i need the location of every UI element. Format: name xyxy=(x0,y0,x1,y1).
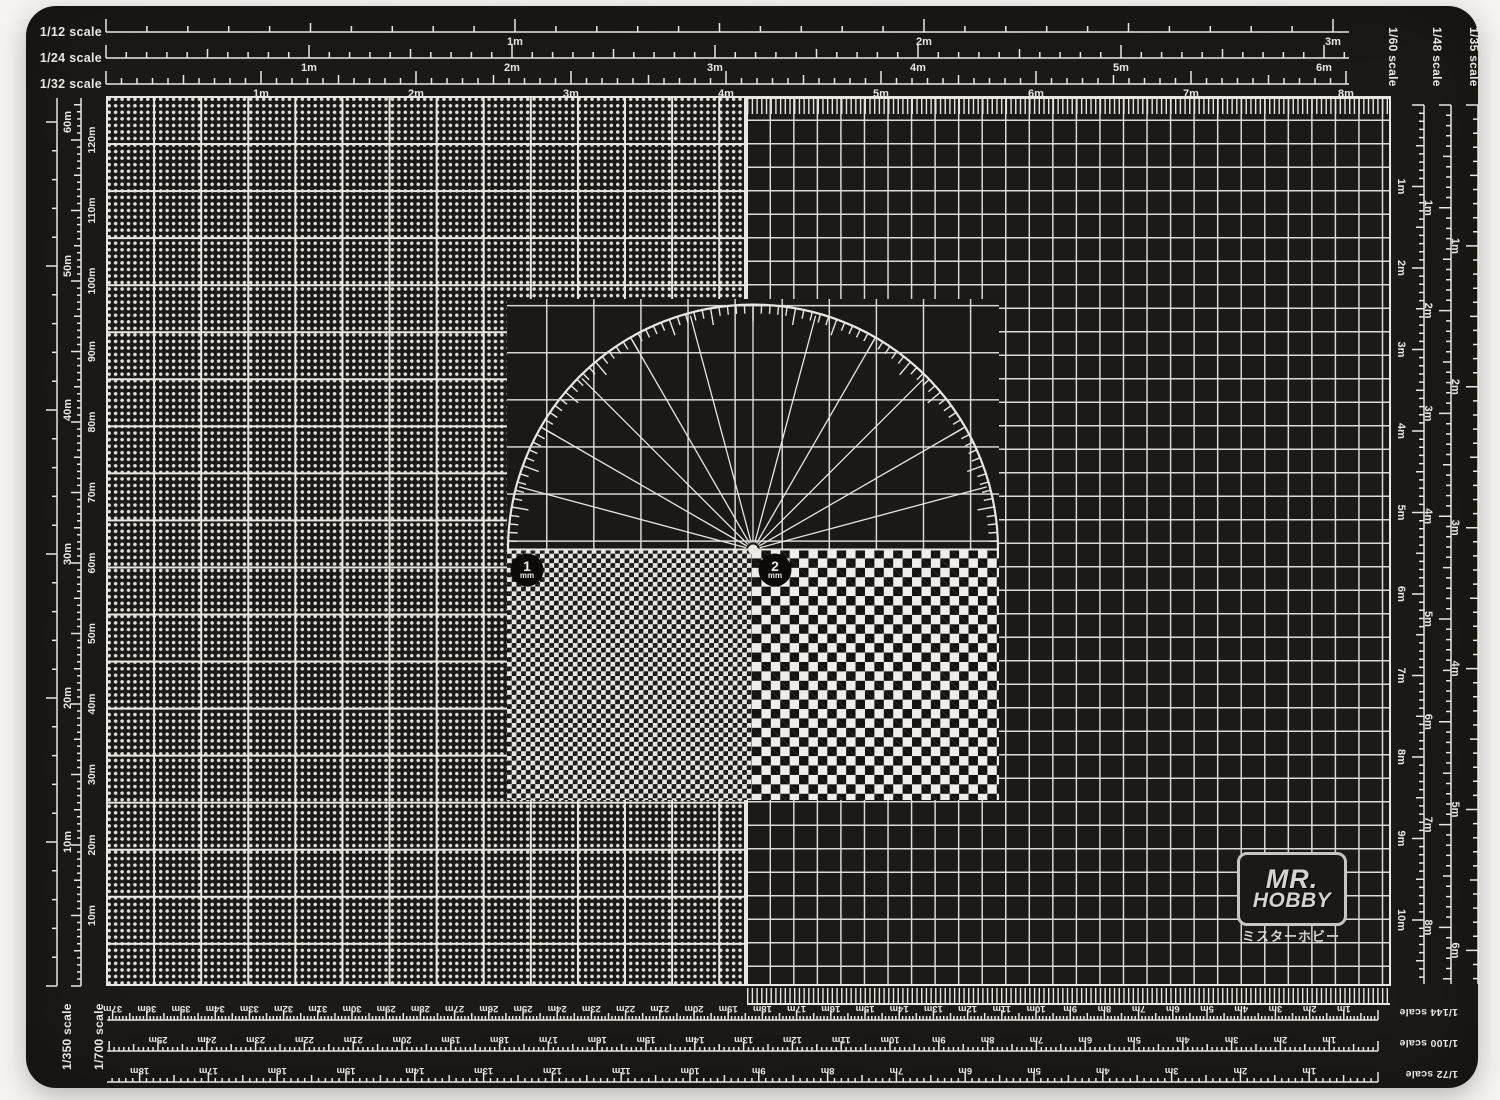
product-photo-cutting-mat: 1m2m3m1m2m3m4m5m6m1m2m3m4m5m6m7m8m10m20m… xyxy=(0,0,1500,1100)
scale-label-1-48: 1/48 scale xyxy=(1430,27,1444,87)
scale-label-1-32: 1/32 scale xyxy=(30,77,102,91)
mr-hobby-logo: MR. HOBBY xyxy=(1237,852,1347,926)
logo-line1: MR. xyxy=(1266,867,1319,891)
badge-1mm-unit: mm xyxy=(520,572,534,580)
checkerboard-1mm-panel xyxy=(507,549,752,800)
logo-subtitle-katakana: ミスターホビー xyxy=(1230,926,1352,945)
scale-label-1-60: 1/60 scale xyxy=(1386,27,1400,87)
scale-label-1-72: 1/72 scale xyxy=(1386,1068,1458,1080)
mm-tick-comb-top xyxy=(747,97,1390,114)
scale-label-1-35: 1/35 scale xyxy=(1467,27,1481,87)
scale-label-1-350: 1/350 scale xyxy=(60,1003,74,1070)
protractor-background-panel xyxy=(507,299,999,549)
scale-label-1-12: 1/12 scale xyxy=(30,25,102,39)
badge-2mm-unit: mm xyxy=(768,572,782,580)
scale-label-1-144: 1/144 scale xyxy=(1386,1006,1458,1018)
badge-2mm: 2 mm xyxy=(760,555,790,585)
scale-label-1-24: 1/24 scale xyxy=(30,51,102,65)
badge-1mm: 1 mm xyxy=(512,555,542,585)
checkerboard-2mm-panel xyxy=(752,549,999,800)
scale-label-1-100: 1/100 scale xyxy=(1386,1037,1458,1049)
scale-label-1-700: 1/700 scale xyxy=(92,1003,106,1070)
mm-tick-comb-bottom xyxy=(747,988,1390,1005)
logo-line2: HOBBY xyxy=(1253,891,1331,911)
